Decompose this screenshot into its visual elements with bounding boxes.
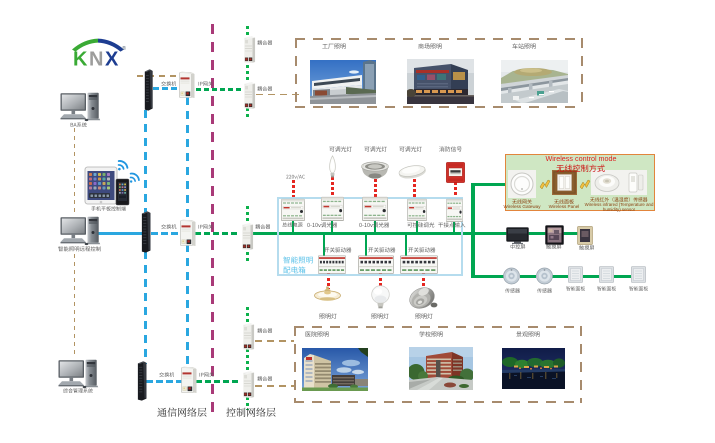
svg-text:®: ® (122, 45, 126, 52)
svg-text:K: K (73, 49, 88, 68)
svg-text:X: X (105, 49, 119, 68)
svg-text:N: N (89, 49, 103, 68)
